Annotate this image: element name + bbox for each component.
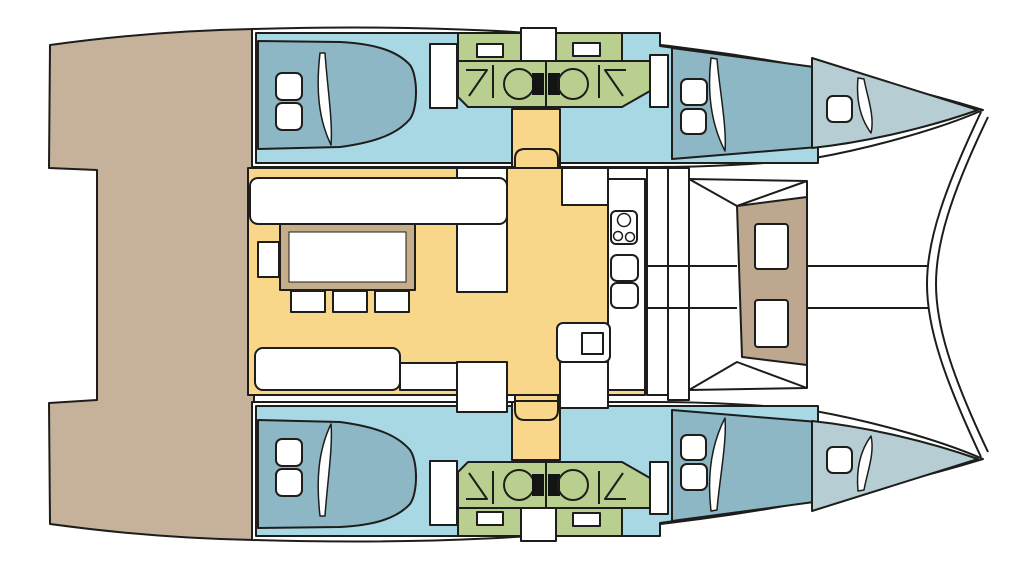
galley-sink: [611, 283, 638, 308]
pillow: [276, 73, 302, 100]
galley-sink-small: [582, 333, 603, 354]
deck-hatch: [477, 44, 503, 57]
bow-hatch: [827, 96, 852, 122]
dining-table-top: [289, 232, 406, 282]
companionway-opening: [521, 28, 556, 61]
pillow: [681, 79, 707, 105]
salon-cabinet: [457, 362, 507, 412]
dining-seat: [333, 291, 367, 312]
salon-sofa: [255, 348, 400, 390]
salon-walkway: [647, 168, 668, 395]
floor-plan-svg: [0, 0, 1024, 569]
pillow: [276, 103, 302, 130]
cabinet: [430, 44, 457, 108]
toilet-tank: [532, 73, 544, 95]
aft-deck: [49, 29, 254, 540]
cabinet: [560, 362, 608, 408]
cockpit-table: [755, 300, 788, 347]
dining-seat: [291, 291, 325, 312]
windshield-bottom: [689, 362, 807, 390]
pillow: [681, 109, 706, 134]
cabinet: [562, 168, 608, 205]
cockpit-table: [755, 224, 788, 269]
salon-sofa: [250, 178, 507, 224]
cabinet: [650, 55, 668, 107]
forward-crossbeam: [936, 117, 988, 452]
forward-bulkhead-band: [668, 168, 689, 400]
dining-seat: [258, 242, 279, 277]
salon-cabinet: [400, 363, 457, 390]
galley-sink: [611, 255, 638, 281]
dining-seat: [375, 291, 409, 312]
deck-hatch: [573, 43, 600, 56]
catamaran-floor-plan: [0, 0, 1024, 569]
